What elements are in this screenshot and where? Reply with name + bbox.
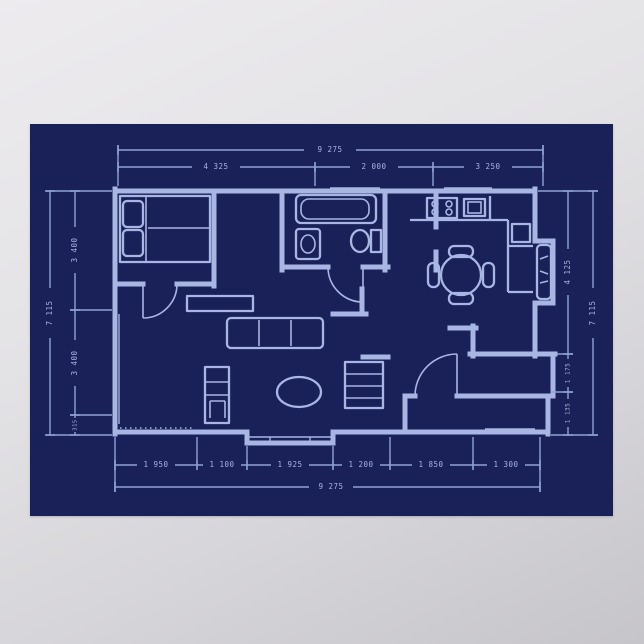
sofa bbox=[227, 318, 323, 348]
dim-extensions-left bbox=[46, 191, 112, 435]
dim-label-left-seg: 3 400 bbox=[70, 350, 79, 375]
dim-label-right-seg: 4 125 bbox=[563, 259, 572, 284]
sofa-cushion-lines bbox=[259, 320, 291, 346]
dim-label-top-total: 9 275 bbox=[317, 145, 342, 154]
bed-blanket-line bbox=[146, 196, 210, 262]
dim-label-bottom-seg: 1 100 bbox=[209, 460, 234, 469]
dim-label-right-total: 7 115 bbox=[588, 300, 597, 325]
bathroom-sink bbox=[296, 229, 320, 259]
bedroom-door-arc bbox=[143, 284, 177, 318]
dim-label-left-total: 7 115 bbox=[45, 300, 54, 325]
dining-table bbox=[441, 255, 481, 295]
toilet-bowl bbox=[351, 230, 369, 252]
bathroom-fixtures bbox=[296, 195, 381, 259]
dresser bbox=[345, 362, 383, 408]
bathtub-basin bbox=[301, 199, 369, 219]
dim-label-right-seg: 1 175 bbox=[565, 363, 572, 384]
product-backdrop: 9 275 4 325 2 000 3 250 7 115 3 400 3 40… bbox=[0, 0, 644, 644]
dim-label-top-seg: 2 000 bbox=[361, 162, 386, 171]
dim-label-left-seg: 3 400 bbox=[70, 237, 79, 262]
dim-label-bottom-seg: 1 850 bbox=[418, 460, 443, 469]
kitchen-sink-basin bbox=[468, 202, 481, 213]
dim-label-bottom-seg: 1 300 bbox=[493, 460, 518, 469]
dim-label-top-seg: 3 250 bbox=[475, 162, 500, 171]
cabinet-shelf-lines bbox=[205, 382, 229, 418]
stove-burner bbox=[446, 209, 452, 215]
floor-plan-blueprint: 9 275 4 325 2 000 3 250 7 115 3 400 3 40… bbox=[30, 124, 613, 516]
dimension-left: 7 115 3 400 3 400 315 bbox=[45, 191, 112, 435]
interior-walls bbox=[115, 191, 476, 432]
dim-label-bottom-seg: 1 950 bbox=[143, 460, 168, 469]
dim-label-right-seg: 1 135 bbox=[565, 403, 572, 424]
entry-door-arc bbox=[415, 354, 457, 396]
fridge-marks bbox=[540, 256, 548, 283]
bathroom-door-arc bbox=[328, 267, 363, 302]
bedroom-furniture bbox=[120, 196, 210, 262]
stove-burner bbox=[446, 201, 452, 207]
dim-label-bottom-total: 9 275 bbox=[318, 482, 343, 491]
bathroom-sink-bowl bbox=[301, 235, 315, 253]
dining-chair-east bbox=[483, 263, 494, 287]
counter-appliance bbox=[512, 224, 530, 242]
bed-pillow-bottom bbox=[123, 230, 143, 256]
dimension-top: 9 275 4 325 2 000 3 250 bbox=[118, 145, 543, 186]
entry-side-wall bbox=[405, 396, 415, 432]
windows bbox=[119, 188, 535, 442]
kitchen-fixtures bbox=[410, 196, 551, 304]
corridor-stub-wall bbox=[450, 326, 476, 356]
dim-label-bottom-seg: 1 925 bbox=[277, 460, 302, 469]
coffee-table bbox=[277, 377, 321, 407]
dresser-drawer-lines bbox=[345, 374, 383, 398]
console-table bbox=[187, 296, 253, 311]
toilet-tank bbox=[371, 230, 381, 252]
dim-label-left-seg: 315 bbox=[73, 419, 79, 430]
dim-label-bottom-seg: 1 200 bbox=[348, 460, 373, 469]
right-wall bbox=[457, 189, 555, 434]
dim-label-top-seg: 4 325 bbox=[203, 162, 228, 171]
bed-pillow-top bbox=[123, 201, 143, 227]
stove bbox=[427, 198, 457, 218]
blueprint-poster: 9 275 4 325 2 000 3 250 7 115 3 400 3 40… bbox=[30, 124, 613, 516]
